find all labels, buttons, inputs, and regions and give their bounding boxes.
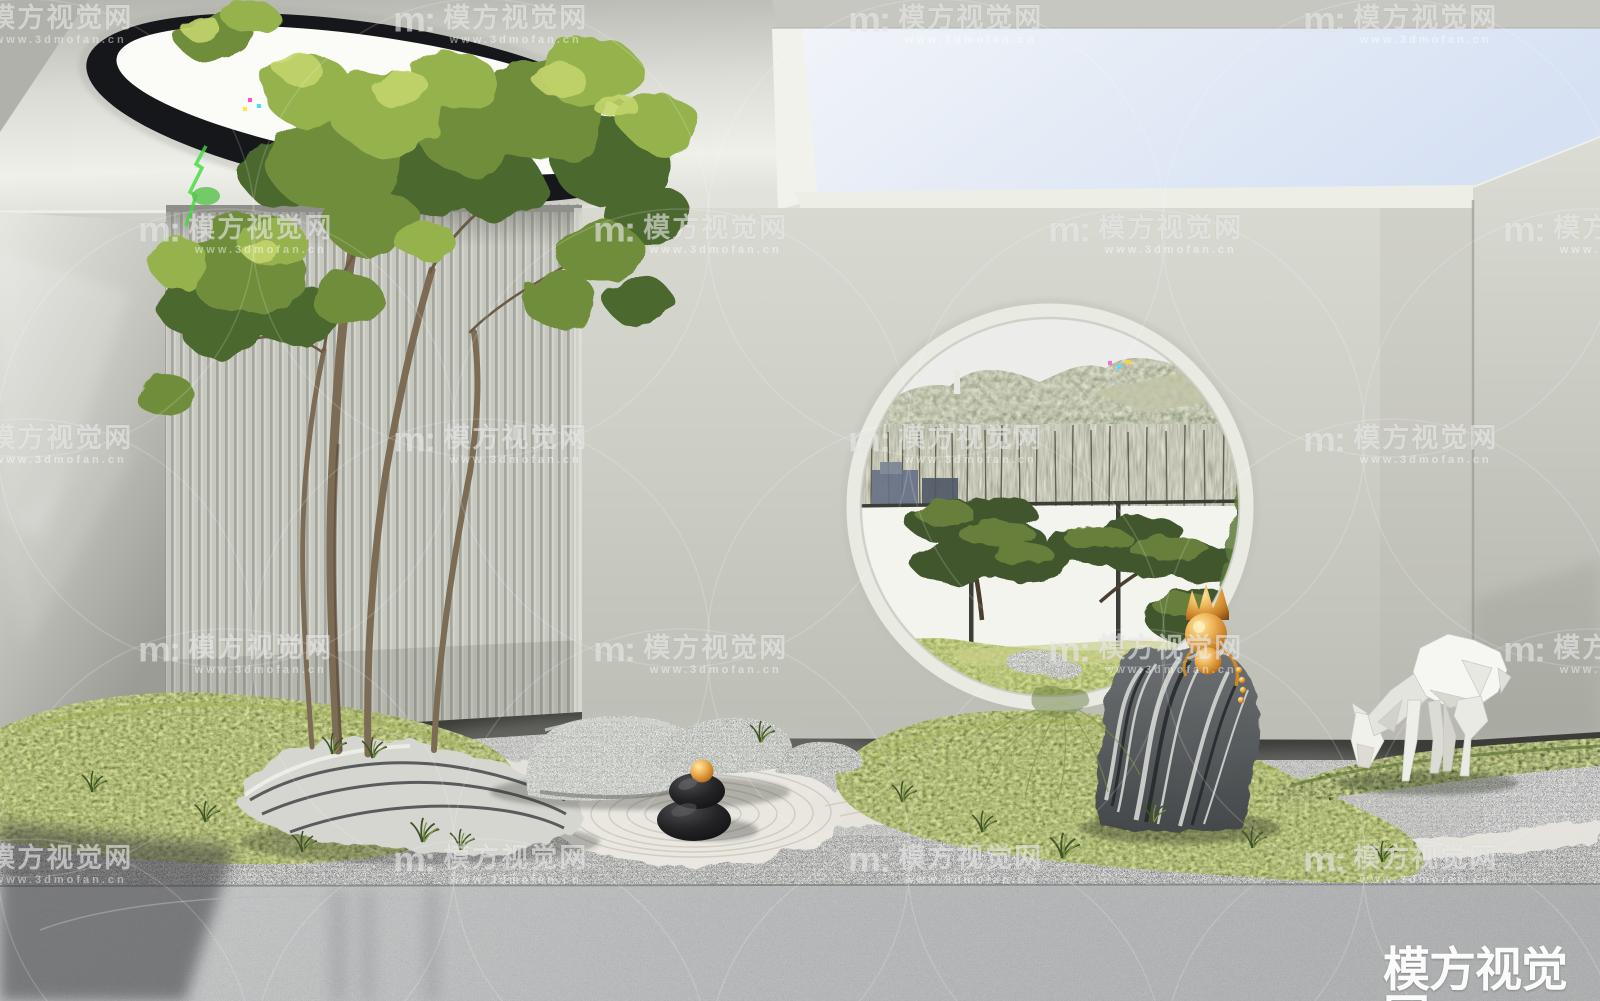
distant-tower — [954, 370, 960, 394]
corner-watermark: 模方视觉网 — [1383, 946, 1600, 1001]
scene-svg — [0, 0, 1600, 1001]
courtyard-render: m:模方视觉网www.3dmofan.cnm:模方视觉网www.3dmofan.… — [0, 0, 1600, 1001]
left-wall — [0, 212, 166, 758]
